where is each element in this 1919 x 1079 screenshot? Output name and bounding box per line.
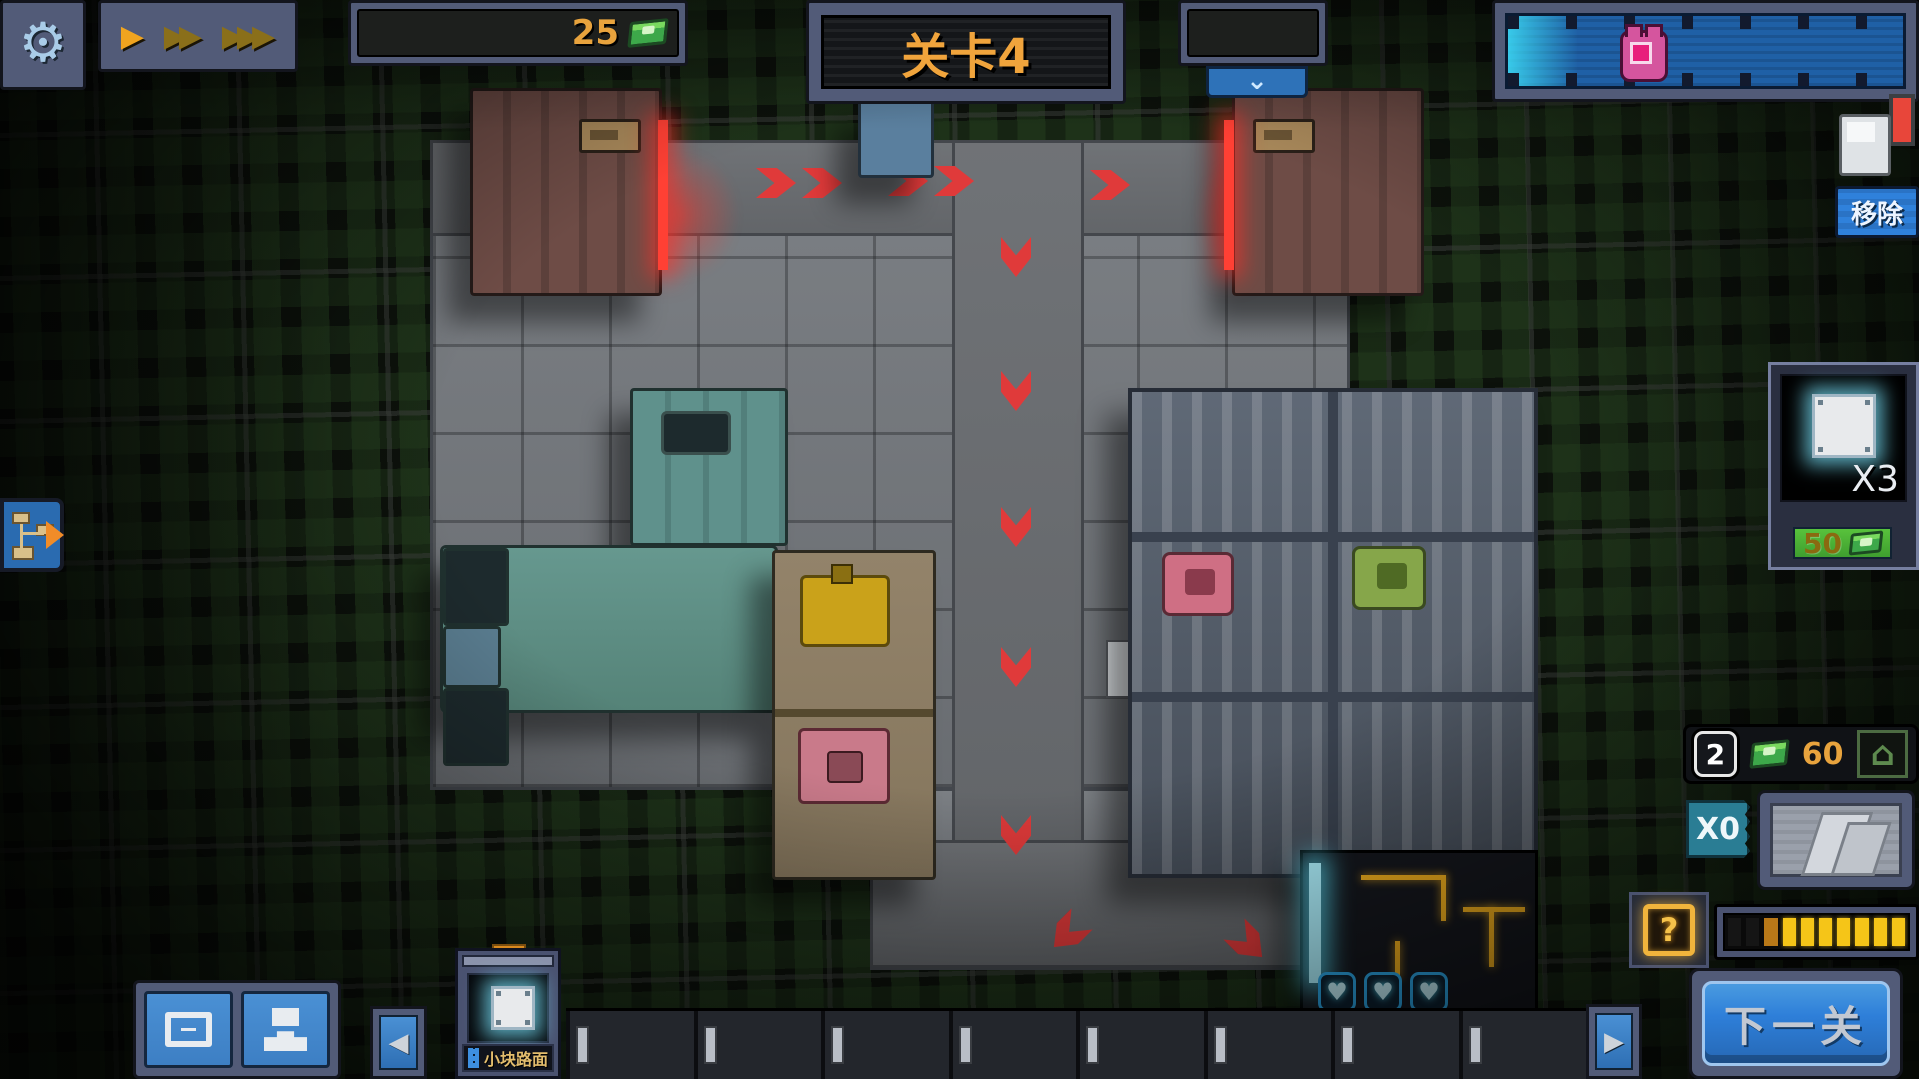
toolbar-slot-strip: [566, 1008, 1586, 1079]
chip-question-icon: ?: [1643, 904, 1695, 956]
mystery-chip-button[interactable]: ?: [1629, 892, 1709, 968]
progress-segment: [1874, 918, 1887, 946]
cost-slot-count: 2: [1694, 731, 1737, 777]
remove-button[interactable]: 移除: [1835, 186, 1919, 238]
wave-info-panel: [1178, 0, 1328, 66]
pink-bot: [1162, 552, 1234, 616]
gate-light-strip: [658, 120, 668, 270]
tools-panel: [133, 980, 341, 1079]
teal-van[interactable]: [440, 545, 778, 713]
remove-marker-icon: [1889, 94, 1915, 146]
money-value: 25: [572, 13, 619, 53]
progress-segment: [1837, 918, 1850, 946]
chevron-down-icon: ⌄: [1246, 66, 1268, 96]
gate-latch: [1253, 119, 1315, 153]
wave-progress-bar: [1714, 904, 1919, 960]
wave-info-inset: [1187, 9, 1319, 57]
heart-icon: ♥: [1318, 972, 1356, 1012]
question-mark: ?: [1660, 911, 1679, 949]
gate-light-strip: [1224, 120, 1234, 270]
item-price: 50: [1803, 527, 1842, 560]
circuit-line: [1489, 907, 1494, 967]
cost-price: 60: [1802, 737, 1844, 772]
selected-item-label: 小块路面: [484, 1046, 548, 1070]
toolbar-slot-empty[interactable]: [821, 1011, 949, 1079]
item-panel[interactable]: X3 50: [1768, 362, 1919, 570]
build-tool-button[interactable]: [241, 991, 330, 1068]
multiplier-value: X0: [1696, 812, 1740, 847]
progress-segment: [1801, 918, 1814, 946]
toolbar-slot-empty[interactable]: [1204, 1011, 1332, 1079]
arrow-left-icon: ◀: [389, 1028, 409, 1058]
road-tile-icon: [1812, 394, 1876, 458]
progress-segment: [1855, 918, 1868, 946]
truck-seam: [775, 709, 933, 717]
selected-item-card[interactable]: 小块路面: [455, 948, 561, 1079]
money-panel: 25: [348, 0, 688, 66]
enemy-path-vertical: [952, 140, 1084, 860]
collapse-button[interactable]: ⌄: [1206, 66, 1308, 98]
enemy-timeline-panel: [1492, 0, 1919, 102]
van-window: [443, 688, 509, 766]
gear-icon: ⚙: [3, 3, 83, 83]
tech-tree-button[interactable]: [0, 498, 64, 572]
blue-truck: [858, 100, 934, 178]
bot-core: [1377, 563, 1407, 589]
house-icon: ⌂: [1871, 734, 1895, 774]
van-hatch: [443, 626, 501, 688]
card-icon-zone: [467, 973, 549, 1043]
level-banner-screen: 关卡4: [821, 15, 1111, 89]
circuit-line: [1361, 875, 1445, 880]
enemy-screen: [1630, 42, 1652, 64]
progress-segment: [1819, 918, 1832, 946]
item-price-bar: 50: [1793, 527, 1892, 559]
road-tile-icon: [491, 986, 535, 1030]
next-level-button[interactable]: 下一关: [1689, 968, 1903, 1079]
heart-icon: ♥: [1410, 972, 1448, 1012]
pink-turret[interactable]: [798, 728, 890, 804]
remove-tool: [1833, 92, 1919, 184]
base-energy-bar: [1309, 863, 1321, 983]
remove-building-icon: [1839, 114, 1891, 176]
wave-progress-track: [1723, 913, 1910, 951]
circuit-line: [1463, 907, 1525, 912]
speed-4x-button[interactable]: ▶▶▶: [222, 19, 275, 54]
expand-arrow-icon: [46, 521, 64, 549]
house-icon-box: ⌂: [1857, 730, 1908, 778]
tech-node: [12, 512, 30, 524]
container-window: [661, 411, 731, 455]
turret-barrel: [831, 564, 853, 584]
toolbar-slot-empty[interactable]: [694, 1011, 822, 1079]
speed-1x-button[interactable]: ▶: [121, 19, 144, 54]
cost-tooltip-bar: 2 60 ⌂: [1683, 724, 1919, 784]
remove-label: 移除: [1851, 194, 1903, 231]
cash-icon: [1849, 530, 1884, 555]
yellow-turret[interactable]: [800, 575, 890, 647]
settings-button[interactable]: ⚙: [0, 0, 86, 90]
toolbar-slot-empty[interactable]: [949, 1011, 1077, 1079]
speed-panel: ▶ ▶▶ ▶▶▶: [98, 0, 298, 72]
gate-latch: [579, 119, 641, 153]
enemy-timeline-track: [1505, 13, 1906, 89]
next-level-face: 下一关: [1702, 981, 1890, 1066]
cards-button[interactable]: [1757, 790, 1915, 890]
next-level-label: 下一关: [1724, 993, 1868, 1054]
level-title: 关卡4: [901, 17, 1030, 87]
progress-segment: [1764, 918, 1777, 946]
teal-container[interactable]: [630, 388, 788, 546]
cage-bar: [1328, 392, 1338, 874]
item-count: X3: [1851, 459, 1899, 500]
toolbar-slot-empty[interactable]: [1331, 1011, 1459, 1079]
toolbar-slot-empty[interactable]: [1459, 1011, 1587, 1079]
turret-core: [827, 751, 863, 783]
multiplier-tag: X0: [1686, 800, 1750, 858]
cpu-icon: [165, 1012, 212, 1047]
grid-icon: [468, 1048, 479, 1068]
tech-link: [20, 524, 23, 548]
tech-node: [12, 546, 34, 560]
cash-icon: [627, 18, 668, 48]
timeline-notches: [1508, 73, 1903, 86]
health-hearts: ♥♥♥: [1318, 972, 1448, 1012]
speed-2x-button[interactable]: ▶▶: [164, 19, 202, 54]
chip-tool-button[interactable]: [144, 991, 233, 1068]
progress-segment: [1728, 918, 1741, 946]
progress-segment: [1746, 918, 1759, 946]
circuit-line: [1441, 875, 1446, 921]
game-screen: ♥♥♥ ⚙ ▶ ▶▶ ▶▶▶ 25 关卡4 ⌄: [0, 0, 1919, 1079]
progress-segment: [1783, 918, 1796, 946]
spawn-gate-right: [1232, 88, 1424, 296]
toolbar-scroll-left[interactable]: ◀: [370, 1006, 427, 1079]
van-window: [443, 548, 509, 626]
card-label-bar: 小块路面: [462, 1044, 554, 1072]
heart-icon: ♥: [1364, 972, 1402, 1012]
blocks-icon: [264, 1008, 307, 1051]
toolbar-scroll-right[interactable]: ▶: [1586, 1004, 1642, 1079]
toolbar-slot-empty[interactable]: [566, 1011, 694, 1079]
timeline-notches: [1508, 16, 1903, 29]
item-icon-zone: X3: [1780, 374, 1907, 502]
card-top-strip: [462, 955, 554, 967]
arrow-right-icon: ▶: [1604, 1027, 1624, 1057]
cage-structure[interactable]: [1128, 388, 1538, 878]
green-bot: [1352, 546, 1426, 610]
spawn-gate-left: [470, 88, 662, 296]
level-banner: 关卡4: [806, 0, 1126, 104]
tech-link: [20, 532, 44, 535]
toolbar-slot-empty[interactable]: [1076, 1011, 1204, 1079]
enemy-preview-icon: [1620, 30, 1668, 82]
cards-button-face: [1770, 803, 1902, 877]
progress-segment: [1892, 918, 1905, 946]
cash-icon: [1749, 739, 1789, 769]
bot-core: [1185, 569, 1215, 595]
